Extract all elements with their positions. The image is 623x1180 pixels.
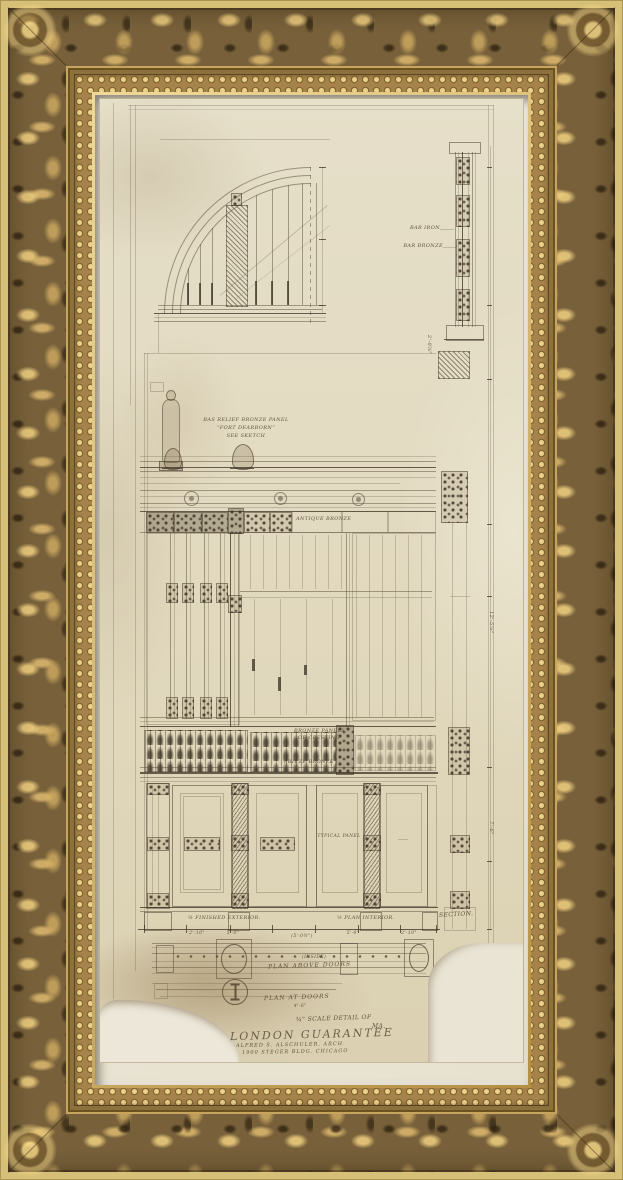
drawing-stroke xyxy=(466,521,467,929)
drawing-stroke xyxy=(231,893,249,908)
label-bronze-panels-2: OF CRESTING xyxy=(298,735,340,742)
drawing-stroke xyxy=(438,351,470,379)
drawing-stroke xyxy=(154,321,326,322)
drawing-stroke xyxy=(304,665,307,675)
drawing-stroke xyxy=(319,167,326,168)
drawing-stroke xyxy=(487,861,492,862)
drawing-stroke xyxy=(319,305,326,306)
drawing-stroke xyxy=(231,783,249,795)
drawing-stroke xyxy=(147,893,169,908)
drawing-stroke xyxy=(170,533,171,719)
drawing-stroke xyxy=(190,533,191,719)
label-antique-bronze: ANTIQUE BRONZE xyxy=(296,516,352,523)
drawing-stroke xyxy=(182,697,194,719)
label-dim-12-5: 12'-5⅞" xyxy=(488,611,495,634)
drawing-stroke xyxy=(354,735,436,771)
drawing-stroke xyxy=(352,533,436,721)
drawing-stroke xyxy=(302,183,303,305)
drawing-stroke xyxy=(487,929,492,930)
drawing-stroke xyxy=(443,247,456,248)
drawing-stroke xyxy=(113,103,114,999)
drawing-stroke xyxy=(488,105,489,1005)
drawing-stroke xyxy=(363,783,381,795)
drawing-stroke xyxy=(444,339,484,340)
drawing-stroke xyxy=(322,793,358,893)
drawing-stroke xyxy=(398,839,408,840)
drawing-stroke xyxy=(128,105,494,106)
drawing-stroke xyxy=(166,697,178,719)
drawing-stroke xyxy=(271,281,273,305)
drawing-stroke xyxy=(202,512,228,533)
drawing-stroke xyxy=(135,105,136,971)
drawing-stroke xyxy=(140,907,438,908)
drawing-stroke xyxy=(346,533,347,727)
drawing-stroke xyxy=(140,781,436,782)
drawing-stroke xyxy=(224,533,225,719)
drawing-stroke xyxy=(211,283,213,305)
drawing-stroke xyxy=(140,721,434,722)
drawing-stroke xyxy=(260,837,295,851)
drawing-stroke xyxy=(319,239,326,240)
drawing-stroke xyxy=(341,535,342,589)
drawing-stroke xyxy=(289,535,290,589)
title-address-line: 1900 STEGER BLDG. CHICAGO xyxy=(242,1048,349,1056)
label-dim-2-0: 2'-0⅞" xyxy=(426,335,433,354)
drawing-stroke xyxy=(234,533,235,727)
drawing-stroke xyxy=(140,767,436,768)
label-bar-iron: BAR IRON xyxy=(400,225,440,232)
drawing-stroke xyxy=(349,533,350,727)
drawing-stroke xyxy=(154,317,326,318)
drawing-stroke xyxy=(404,939,434,977)
drawing-stroke xyxy=(280,599,281,715)
drawing-stroke xyxy=(388,511,436,533)
paper-tear-right xyxy=(428,943,524,1063)
drawing-stroke xyxy=(244,512,270,533)
drawing-stroke xyxy=(174,512,202,533)
drawing-stroke xyxy=(315,535,316,589)
drawing-stroke xyxy=(322,167,323,313)
drawing-stroke xyxy=(130,105,131,405)
drawing-stroke xyxy=(306,599,307,715)
drawing-stroke xyxy=(340,943,358,975)
drawing-stroke xyxy=(352,493,365,506)
drawing-stroke xyxy=(493,105,494,1005)
drawing-stroke xyxy=(140,772,438,774)
drawing-stroke xyxy=(230,468,254,469)
drawing-stroke xyxy=(263,535,264,589)
drawing-stroke xyxy=(356,535,357,717)
drawing-stroke xyxy=(147,837,169,851)
drawing-stroke xyxy=(230,533,231,727)
drawing-stroke xyxy=(328,535,329,589)
drawing-stroke xyxy=(184,837,220,851)
label-dim-4: 2'-10" xyxy=(394,931,424,937)
drawing-stroke xyxy=(204,533,205,719)
drawing-stroke xyxy=(369,535,370,717)
label-half-plan-interior: ½ PLAN INTERIOR. xyxy=(337,915,407,922)
drawing-stroke xyxy=(208,533,209,719)
framed-architectural-drawing: BAR IRON BAR BRONZE 2'-0⅞" xyxy=(0,0,623,1180)
drawing-stroke xyxy=(252,659,255,671)
drawing-stroke xyxy=(395,535,396,717)
drawing-stroke xyxy=(278,677,281,691)
drawing-stroke xyxy=(228,508,244,534)
drawing-stroke xyxy=(187,283,189,305)
drawing-stroke xyxy=(449,142,481,154)
drawing-stroke xyxy=(140,777,436,778)
drawing-stroke xyxy=(427,785,437,907)
drawing-stroke xyxy=(276,535,277,589)
drawing-stroke xyxy=(216,697,228,719)
drawing-stroke xyxy=(475,152,476,327)
label-bar-bronze: BAR BRONZE xyxy=(403,243,443,250)
drawing-sheet: BAR IRON BAR BRONZE 2'-0⅞" xyxy=(99,98,524,1063)
drawing-stroke xyxy=(456,157,470,185)
drawing-stroke xyxy=(154,313,326,314)
drawing-stroke xyxy=(363,893,381,908)
drawing-stroke xyxy=(128,109,494,110)
drawing-stroke xyxy=(315,925,316,933)
drawing-stroke xyxy=(456,195,470,227)
drawing-stroke xyxy=(450,835,470,853)
drawing-stroke xyxy=(140,911,438,912)
drawing-stroke xyxy=(487,524,492,525)
drawing-stroke xyxy=(231,193,242,206)
drawing-stroke xyxy=(182,583,194,603)
drawing-stroke xyxy=(310,167,311,323)
drawing-stroke xyxy=(487,167,492,168)
drawing-stroke xyxy=(144,730,248,772)
drawing-stroke xyxy=(140,726,436,727)
drawing-stroke xyxy=(250,535,251,589)
label-dim-3: 5'-0" xyxy=(340,931,366,937)
drawing-stroke xyxy=(166,583,178,603)
drawing-stroke xyxy=(255,281,257,305)
label-dim-7-6: 7'-6" xyxy=(488,821,495,835)
drawing-stroke xyxy=(436,925,437,933)
label-frieze-bronze: FRIEZE BRONZE xyxy=(284,759,334,766)
label-typical-panel: TYPICAL PANEL xyxy=(317,834,361,840)
drawing-stroke xyxy=(186,533,187,719)
drawing-stroke xyxy=(316,183,317,305)
drawing-stroke xyxy=(199,283,201,305)
drawing-stroke xyxy=(231,835,249,851)
drawing-stroke xyxy=(440,229,454,230)
drawing-stroke xyxy=(200,583,212,603)
drawing-stroke xyxy=(456,289,470,321)
drawing-stroke xyxy=(490,146,491,929)
drawing-stroke xyxy=(216,583,228,603)
drawing-stroke xyxy=(147,783,169,795)
drawing-stroke xyxy=(363,835,381,851)
drawing-stroke xyxy=(254,599,255,715)
drawing-stroke xyxy=(408,535,409,717)
drawing-stroke xyxy=(450,596,470,597)
drawing-stroke xyxy=(160,139,330,140)
drawing-stroke xyxy=(158,305,322,306)
drawing-stroke xyxy=(332,599,333,715)
drawing-stroke xyxy=(448,727,470,775)
drawing-stroke xyxy=(487,767,492,768)
drawing-stroke xyxy=(382,535,383,717)
drawing-stroke xyxy=(200,697,212,719)
label-bronze-panels-1: BRONZE PANELS xyxy=(294,728,345,735)
drawing-stroke xyxy=(158,309,322,310)
drawing-stroke xyxy=(287,281,289,305)
title-scale-line: ¾" SCALE DETAIL OF xyxy=(296,1014,372,1024)
drawing-stroke xyxy=(238,533,239,727)
drawing-stroke xyxy=(487,305,492,306)
drawing-stroke xyxy=(409,944,429,972)
drawing-stroke xyxy=(220,533,221,719)
drawing-stroke xyxy=(146,512,174,533)
drawing-stroke xyxy=(140,717,434,718)
drawing-stroke xyxy=(421,535,422,717)
paper-stain xyxy=(120,329,240,509)
drawing-stroke xyxy=(456,239,470,277)
drawing-stroke xyxy=(472,152,473,327)
drawing-stroke xyxy=(441,471,468,523)
drawing-stroke xyxy=(487,596,492,597)
drawing-stroke xyxy=(386,793,422,893)
drawing-stroke xyxy=(270,512,292,533)
mat: BAR IRON BAR BRONZE 2'-0⅞" xyxy=(95,95,528,1085)
drawing-stroke xyxy=(452,521,453,929)
drawing-stroke xyxy=(302,535,303,589)
drawing-stroke xyxy=(487,379,492,380)
drawing-stroke xyxy=(174,533,175,719)
